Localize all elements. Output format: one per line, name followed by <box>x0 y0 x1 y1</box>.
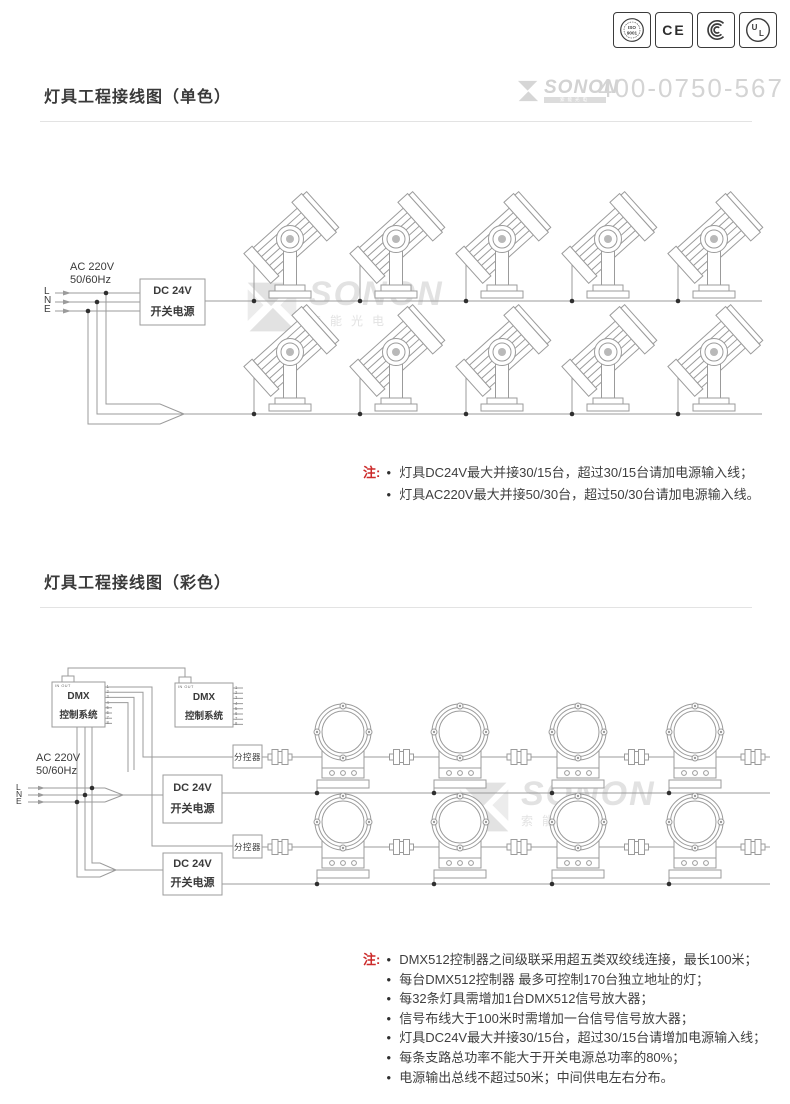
line-e-label: E <box>16 797 22 806</box>
spotlight-lamp <box>664 190 764 301</box>
cable-connector <box>625 840 649 855</box>
splitter-box-label: 分控器 <box>233 835 262 858</box>
note-item: 每条支路总功率不能大于开关电源总功率的80%； <box>386 1048 766 1068</box>
psu-type: 开关电源 <box>171 874 215 890</box>
splitter-box-label: 分控器 <box>233 745 262 768</box>
cable-connector <box>741 840 765 855</box>
dmx-io-label: IN OUT <box>178 685 194 689</box>
cable-connector <box>507 840 531 855</box>
spotlight-lamp <box>346 190 446 301</box>
ac-voltage-label: AC 220V 50/60Hz <box>70 261 114 286</box>
note-item: DMX512控制器之间级联采用超五类双绞线连接，最长100米； <box>386 950 766 970</box>
dmx-pin-numbers: 1 2 3 4 5 6 7 8 <box>107 684 109 726</box>
dmx-io-label: IN OUT <box>55 684 71 688</box>
floodlight-lamp <box>549 703 607 793</box>
psu-box-label: DC 24V 开关电源 <box>140 279 205 325</box>
floodlight-lamp <box>314 793 372 883</box>
floodlight-lamp <box>431 793 489 883</box>
diagram-color <box>28 668 770 895</box>
spotlight-lamp <box>240 303 340 414</box>
section2-title: 灯具工程接线图（彩色） <box>44 569 231 593</box>
cable-connector <box>507 750 531 765</box>
dmx-pin-numbers: 1 2 3 4 5 6 7 8 <box>235 685 237 727</box>
spotlight-lamp <box>452 190 552 301</box>
note-item: 灯具AC220V最大并接50/30台，超过50/30台请加电源输入线。 <box>386 484 759 506</box>
floodlight-lamp <box>666 703 724 793</box>
note-item: 每台DMX512控制器 最多可控制170台独立地址的灯； <box>386 970 766 990</box>
psu-box-label: DC 24V 开关电源 <box>163 775 222 823</box>
dmx-title: DMX <box>52 691 105 702</box>
psu-box-label: DC 24V 开关电源 <box>163 853 222 895</box>
dmx-subtitle: 控制系统 <box>175 708 233 722</box>
note-item: 灯具DC24V最大并接30/15台，超过30/15台请加电源输入线； <box>386 462 759 484</box>
spotlight-lamp <box>240 190 340 301</box>
diagram-mono-arrowheads <box>63 291 71 314</box>
psu-voltage: DC 24V <box>153 285 192 297</box>
dmx-controller-box-label: IN OUT DMX 控制系统 <box>52 682 105 727</box>
notes-color: 注: DMX512控制器之间级联采用超五类双绞线连接，最长100米； 每台DMX… <box>363 950 766 1087</box>
divider <box>40 607 752 608</box>
cable-connector <box>625 750 649 765</box>
note-item: 每32条灯具需增加1台DMX512信号放大器； <box>386 989 766 1009</box>
note-item: 信号布线大于100米时需增加一台信号信号放大器； <box>386 1009 766 1029</box>
line-e-label: E <box>44 305 51 315</box>
floodlight-lamp <box>666 793 724 883</box>
cable-connector <box>390 840 414 855</box>
note-item: 灯具DC24V最大并接30/15台，超过30/15台请增加电源输入线； <box>386 1028 766 1048</box>
ac-voltage-label: AC 220V 50/60Hz <box>36 752 80 777</box>
spotlight-lamp <box>558 190 658 301</box>
psu-voltage: DC 24V <box>173 858 212 870</box>
dmx-controller-box-label: IN OUT DMX 控制系统 <box>175 683 233 727</box>
floodlight-lamp <box>549 793 607 883</box>
psu-voltage: DC 24V <box>173 782 212 794</box>
spotlight-lamp <box>558 303 658 414</box>
spotlight-lamp <box>346 303 446 414</box>
cable-connector <box>268 750 292 765</box>
spotlight-lamp <box>664 303 764 414</box>
floodlight-lamp <box>314 703 372 793</box>
notes-mono: 注: 灯具DC24V最大并接30/15台，超过30/15台请加电源输入线； 灯具… <box>363 462 760 506</box>
dmx-title: DMX <box>175 692 233 703</box>
psu-type: 开关电源 <box>171 800 215 816</box>
note-item: 电源输出总线不超过50米；中间供电左右分布。 <box>386 1068 766 1088</box>
psu-type: 开关电源 <box>151 303 195 319</box>
note-list: DMX512控制器之间级联采用超五类双绞线连接，最长100米； 每台DMX512… <box>386 950 766 1087</box>
cable-connector <box>268 840 292 855</box>
cable-connector <box>390 750 414 765</box>
floodlight-lamp <box>431 703 489 793</box>
note-label: 注: <box>363 462 380 484</box>
note-label: 注: <box>363 950 380 970</box>
diagram-color-arrowheads <box>38 786 45 804</box>
note-list: 灯具DC24V最大并接30/15台，超过30/15台请加电源输入线； 灯具AC2… <box>386 462 759 506</box>
dmx-subtitle: 控制系统 <box>52 707 105 721</box>
catalog-page: SONON 索能光电 SONON 索能光电 ISO 9001 CE <box>0 0 790 1104</box>
cable-connector <box>741 750 765 765</box>
wiring-diagrams-linework <box>0 0 790 1104</box>
spotlight-lamp <box>452 303 552 414</box>
